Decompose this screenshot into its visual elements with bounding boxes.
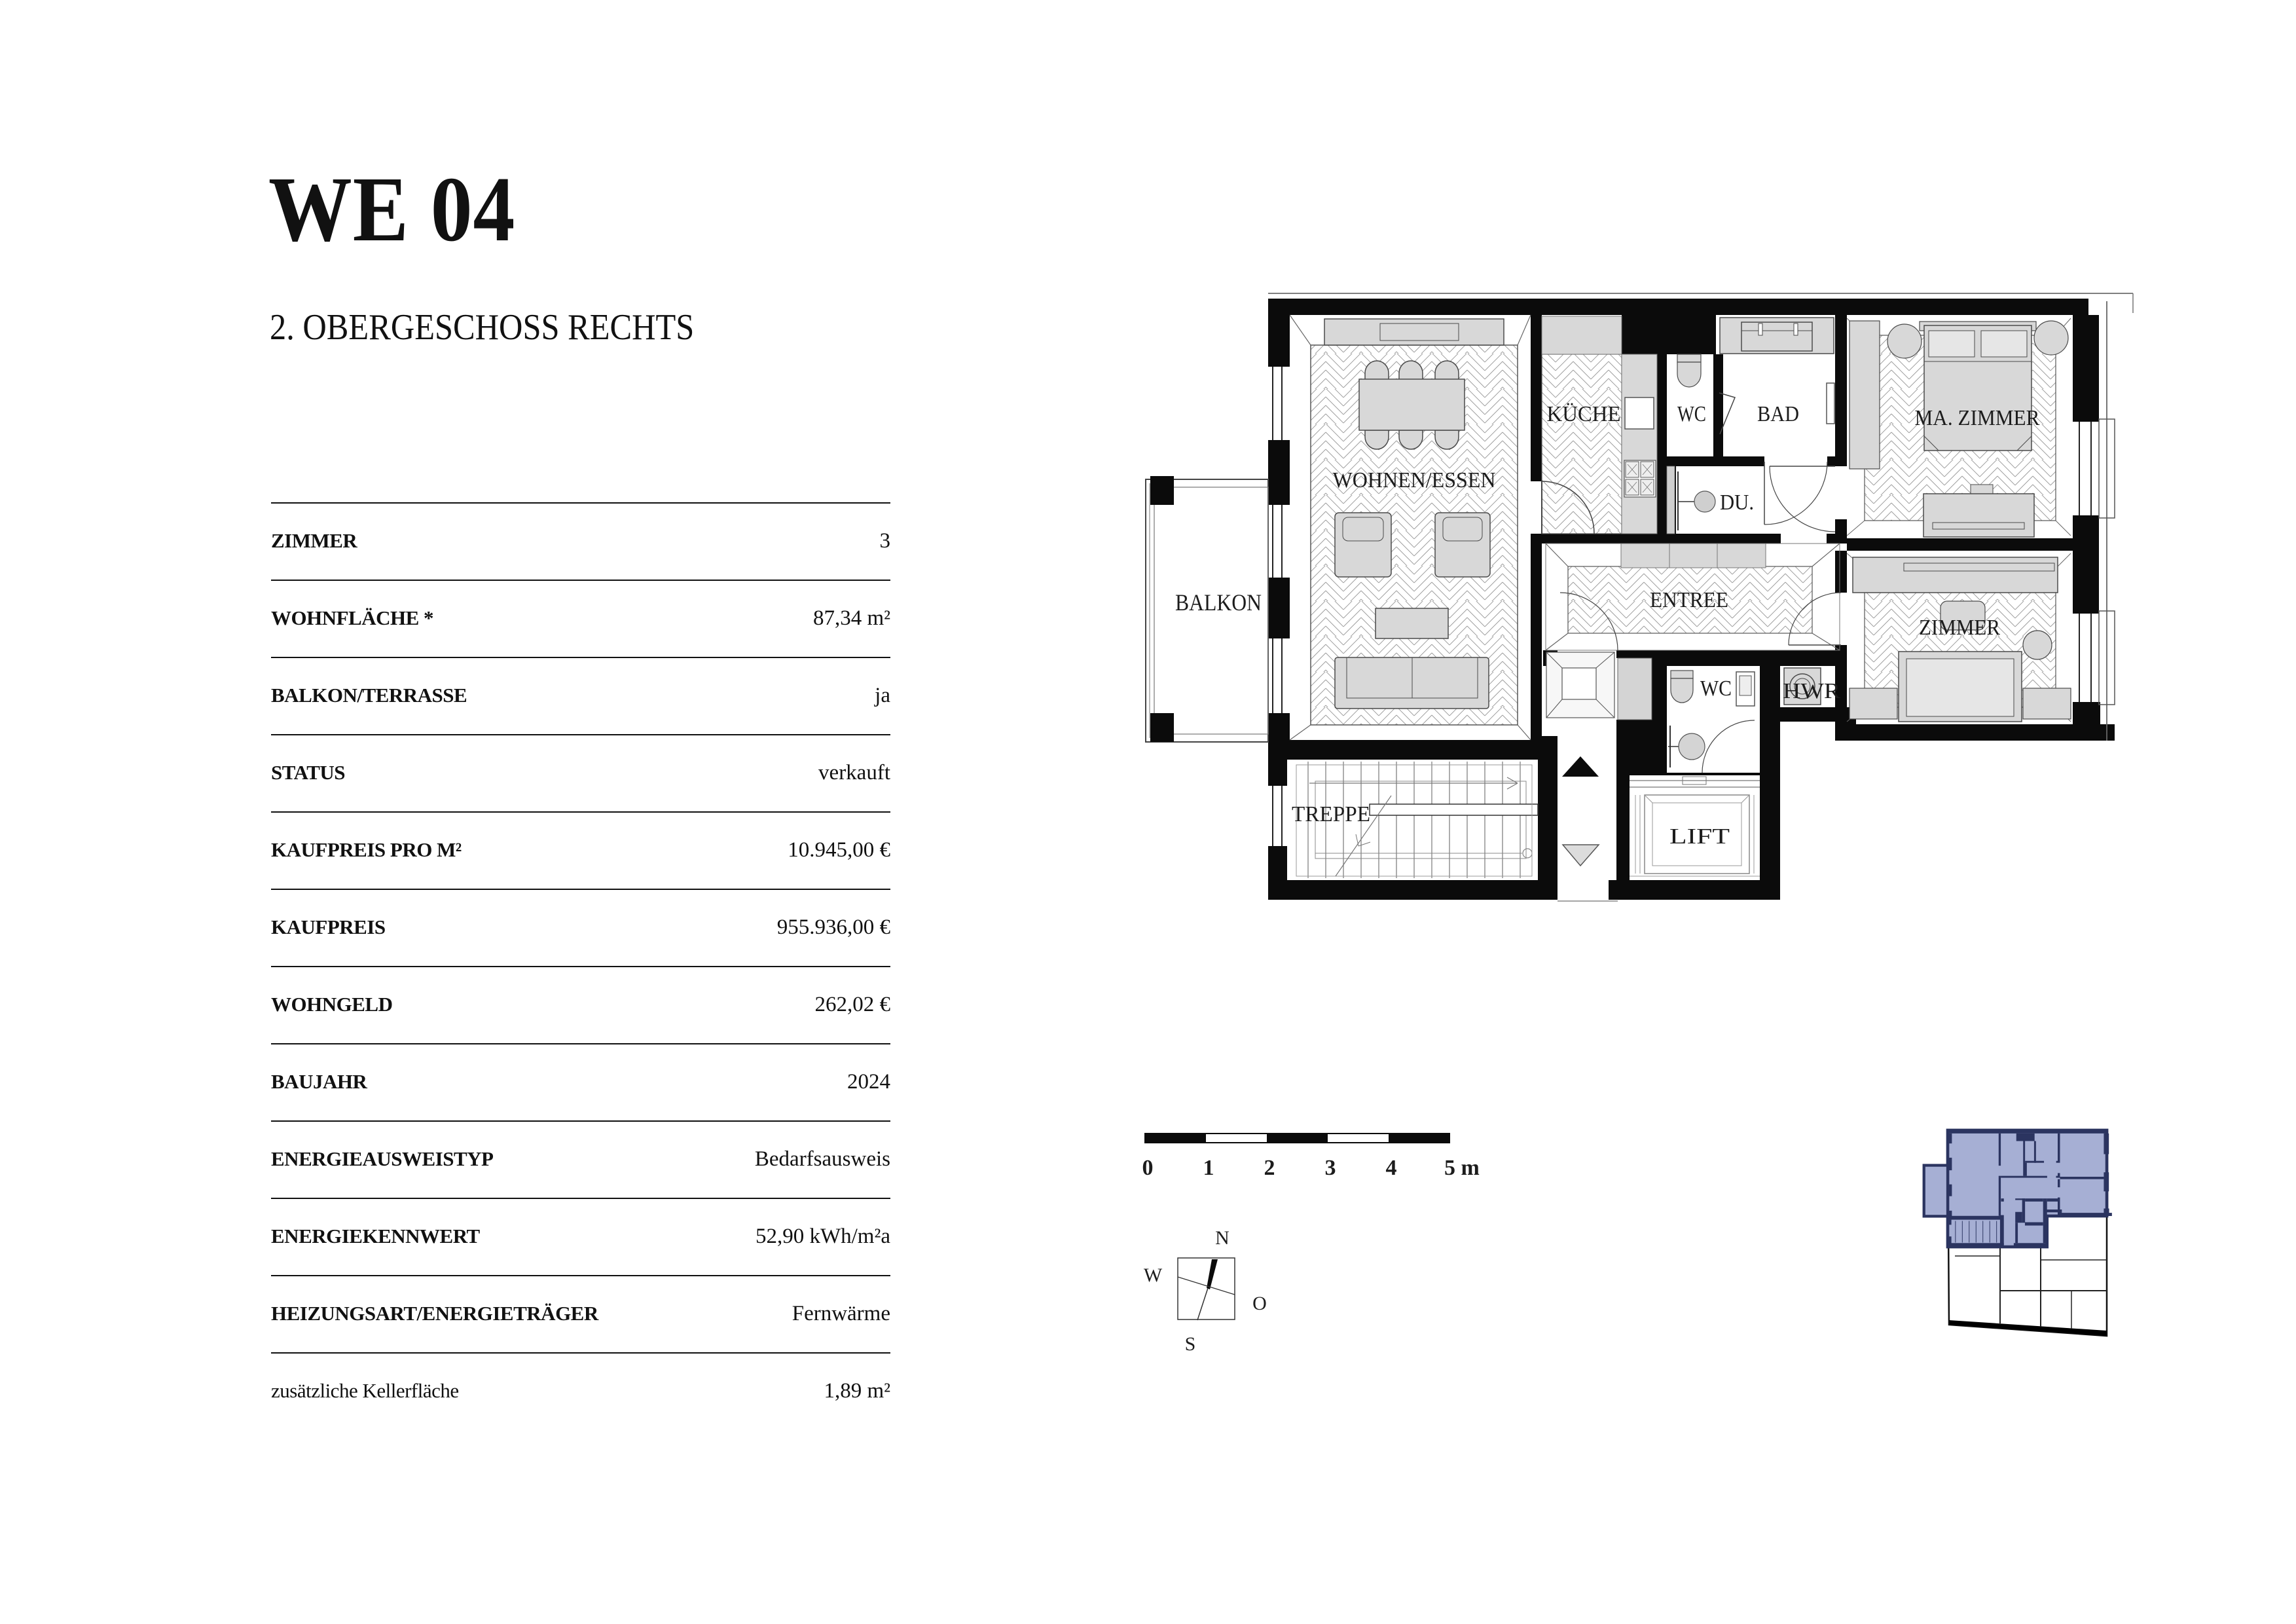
svg-text:WC: WC — [1700, 676, 1732, 701]
svg-text:ZIMMER: ZIMMER — [1919, 616, 2000, 640]
svg-text:1: 1 — [1203, 1156, 1214, 1180]
svg-text:DU.: DU. — [1720, 490, 1754, 515]
svg-text:HWR: HWR — [1783, 679, 1840, 703]
svg-text:4: 4 — [1386, 1156, 1397, 1180]
svg-text:TREPPE: TREPPE — [1292, 802, 1370, 826]
svg-text:ENTREE: ENTREE — [1650, 588, 1728, 612]
svg-text:2: 2 — [1264, 1156, 1275, 1180]
svg-text:N: N — [1215, 1227, 1230, 1249]
svg-text:S: S — [1185, 1333, 1196, 1355]
svg-text:LIFT: LIFT — [1669, 824, 1730, 849]
svg-text:5 m: 5 m — [1444, 1156, 1480, 1180]
svg-text:WOHNEN/ESSEN: WOHNEN/ESSEN — [1333, 468, 1496, 492]
svg-text:BAD: BAD — [1757, 402, 1799, 426]
svg-text:3: 3 — [1325, 1156, 1336, 1180]
svg-text:W: W — [1144, 1264, 1163, 1286]
svg-text:O: O — [1252, 1293, 1267, 1314]
svg-text:0: 0 — [1142, 1156, 1154, 1180]
svg-text:KÜCHE: KÜCHE — [1547, 402, 1621, 426]
svg-text:MA. ZIMMER: MA. ZIMMER — [1915, 406, 2040, 430]
svg-text:BALKON: BALKON — [1175, 589, 1262, 616]
svg-text:WC: WC — [1677, 402, 1706, 426]
